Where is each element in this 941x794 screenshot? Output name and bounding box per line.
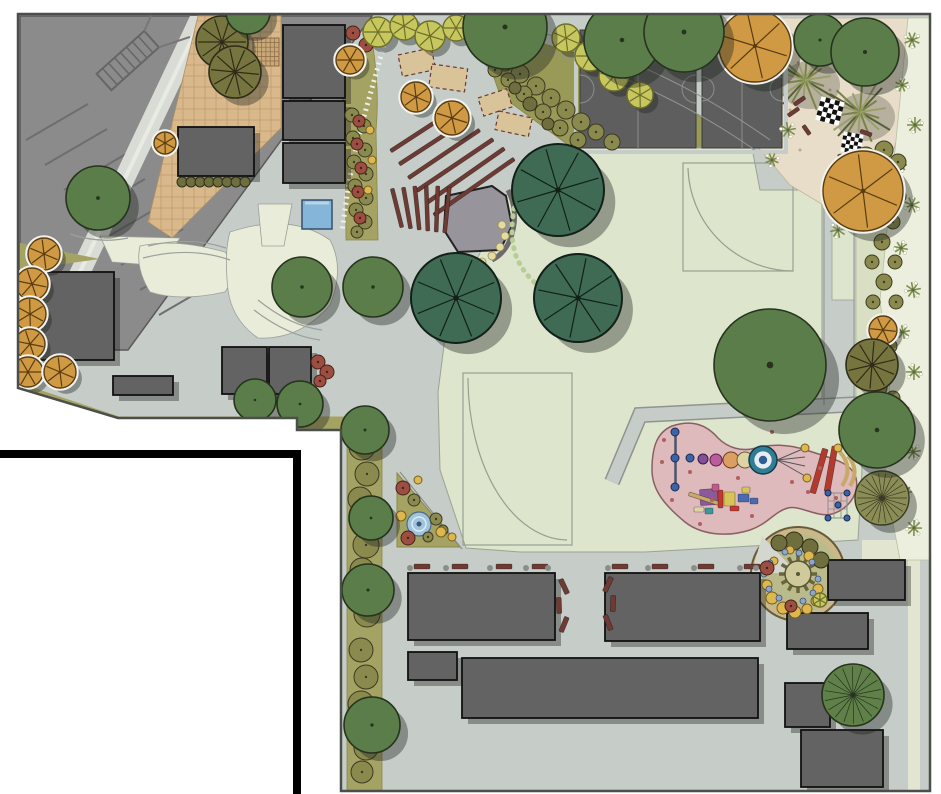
play-element — [750, 498, 758, 504]
building — [828, 560, 911, 606]
flower-rust-icon — [346, 26, 360, 40]
stage-wall-plant — [498, 221, 506, 229]
plaza-dot — [753, 565, 759, 571]
plaza-dot — [407, 565, 413, 571]
play-speckle — [750, 514, 754, 518]
flower-blue-icon — [776, 595, 782, 601]
shrub-olive-icon — [349, 638, 373, 662]
bench — [496, 564, 512, 569]
play-speckle — [670, 498, 674, 502]
bench — [610, 595, 616, 611]
play-element — [718, 490, 723, 508]
shrub-olive-icon — [351, 226, 363, 238]
stage — [444, 186, 512, 252]
fountain-center — [417, 522, 422, 527]
flower-yellow-icon — [364, 186, 372, 194]
shrub-olive-icon — [588, 124, 604, 140]
tree-orange-icon — [153, 131, 178, 156]
shrub-olive-dark-icon — [771, 535, 787, 551]
flower-yellow-icon — [802, 604, 812, 614]
play-speckle — [818, 466, 822, 470]
play-element — [712, 484, 719, 491]
play-element — [730, 506, 739, 511]
park-master-plan — [0, 0, 941, 794]
building — [801, 730, 889, 793]
plaza-dot — [545, 565, 551, 571]
play-speckle — [806, 490, 810, 494]
flower-rust-icon — [401, 531, 415, 545]
plaza-dot — [487, 565, 493, 571]
play-speckle — [662, 438, 666, 442]
plaza-dot — [443, 565, 449, 571]
play-dot-purple — [698, 454, 708, 464]
flower-yellow-icon — [366, 126, 374, 134]
bench — [414, 564, 430, 569]
flower-blue-icon — [809, 559, 815, 565]
flower-rust-icon — [785, 600, 797, 612]
play-element — [694, 507, 704, 512]
plaza-dot — [691, 565, 697, 571]
building — [178, 127, 260, 182]
property-line-horizontal — [0, 450, 300, 458]
flower-yellow-icon — [803, 474, 811, 482]
play-speckle — [790, 480, 794, 484]
flower-rust-icon — [353, 115, 365, 127]
shrub-olive-dark-icon — [523, 97, 537, 111]
play-dot-blue — [835, 502, 841, 508]
play-speckle — [698, 522, 702, 526]
bench — [612, 564, 628, 569]
shrub-olive-icon — [604, 134, 620, 150]
bench — [452, 564, 468, 569]
plaza-dot — [605, 565, 611, 571]
play-dot-blue — [844, 515, 850, 521]
play-dot-blue — [825, 490, 831, 496]
shrub-olive-icon — [557, 101, 575, 119]
property-line-vertical — [293, 450, 301, 794]
play-element — [705, 508, 713, 514]
play-ring-target — [749, 446, 777, 474]
stage-wall-plant — [501, 232, 509, 240]
lawn-patch-entry-2 — [139, 243, 233, 297]
flower-yellow-icon — [414, 476, 422, 484]
shrub-olive-icon — [888, 255, 902, 269]
shrub-olive-icon — [889, 295, 903, 309]
flower-blue-icon — [766, 586, 772, 592]
shrub-olive-icon — [408, 494, 420, 506]
shrub-olive-icon — [865, 255, 879, 269]
shrub-olive-icon — [423, 532, 433, 542]
shrub-olive-icon — [572, 113, 590, 131]
stage-wall-plant — [496, 243, 504, 251]
building — [787, 613, 874, 655]
flower-rust-icon — [354, 212, 366, 224]
flower-rust-icon — [396, 481, 410, 495]
flower-blue-icon — [815, 576, 821, 582]
flower-yellow-icon — [436, 527, 446, 537]
flower-rust-icon — [760, 561, 774, 575]
flower-rust-icon — [355, 162, 367, 174]
building — [408, 573, 561, 646]
bench — [698, 564, 714, 569]
play-element — [724, 492, 735, 506]
flower-blue-icon — [800, 598, 806, 604]
flower-rust-icon — [352, 186, 364, 198]
bench — [652, 564, 668, 569]
shrub-olive-dark-icon — [542, 118, 554, 130]
building — [462, 658, 764, 724]
building — [283, 101, 351, 146]
lawn-inset-east — [832, 230, 854, 300]
plaza-dot — [523, 565, 529, 571]
shrub-olive-icon — [355, 462, 379, 486]
play-dot-blue — [671, 483, 679, 491]
shrub-olive-icon — [552, 120, 568, 136]
play-speckle — [710, 498, 714, 502]
flower-yellow-icon — [368, 156, 376, 164]
building — [408, 652, 463, 686]
building — [283, 143, 351, 189]
flower-rust-icon — [314, 375, 326, 387]
shrub-yellowgreen-icon — [813, 593, 827, 607]
flower-blue-icon — [782, 549, 788, 555]
shrub-olive-icon — [866, 295, 880, 309]
building — [605, 573, 766, 647]
play-dot-blue — [825, 515, 831, 521]
shrub-olive-dark-icon — [509, 82, 521, 94]
flower-yellow-icon — [448, 533, 456, 541]
play-speckle — [834, 496, 838, 500]
play-element — [742, 487, 750, 493]
shrub-olive-icon — [876, 274, 892, 290]
flower-rust-icon — [351, 138, 363, 150]
play-dot-blue — [686, 454, 694, 462]
play-dot-blue — [671, 428, 679, 436]
play-dot-blue — [844, 490, 850, 496]
shrub-olive-dark-icon — [813, 552, 829, 568]
flower-blue-icon — [796, 550, 802, 556]
flower-yellow-icon — [801, 444, 809, 452]
site-plan-canvas — [0, 0, 941, 794]
building — [113, 376, 179, 401]
play-speckle — [660, 460, 664, 464]
play-speckle — [688, 470, 692, 474]
flower-yellow-icon — [834, 444, 842, 452]
stage-wall-plant — [488, 252, 496, 260]
play-element — [738, 494, 749, 502]
play-dot-magenta — [710, 454, 722, 466]
shrub-olive-icon — [430, 513, 442, 525]
play-dot-blue — [671, 454, 679, 462]
bench — [556, 597, 562, 613]
play-speckle — [736, 476, 740, 480]
plaza-dot — [645, 565, 651, 571]
shrub-olive-icon — [351, 761, 373, 783]
shrub-olive-dark-icon — [240, 177, 250, 187]
plaza-dot — [737, 565, 743, 571]
shrub-olive-icon — [354, 665, 378, 689]
